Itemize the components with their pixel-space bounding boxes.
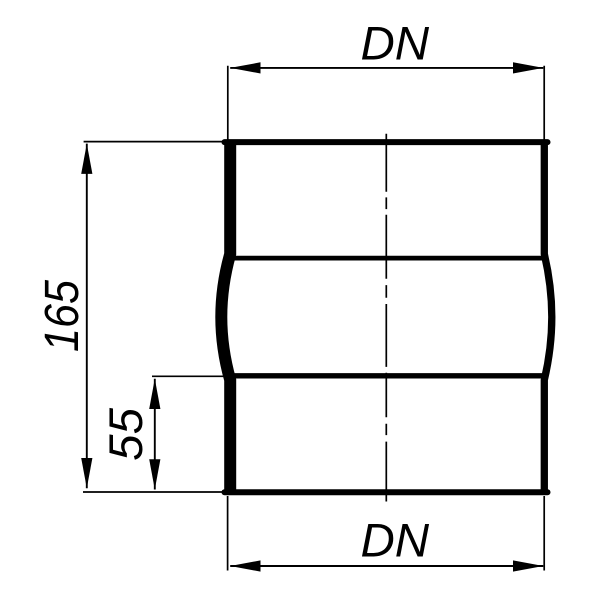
svg-text:DN: DN: [360, 18, 429, 71]
svg-text:DN: DN: [360, 515, 429, 568]
svg-text:55: 55: [100, 407, 153, 460]
svg-text:165: 165: [36, 280, 89, 352]
